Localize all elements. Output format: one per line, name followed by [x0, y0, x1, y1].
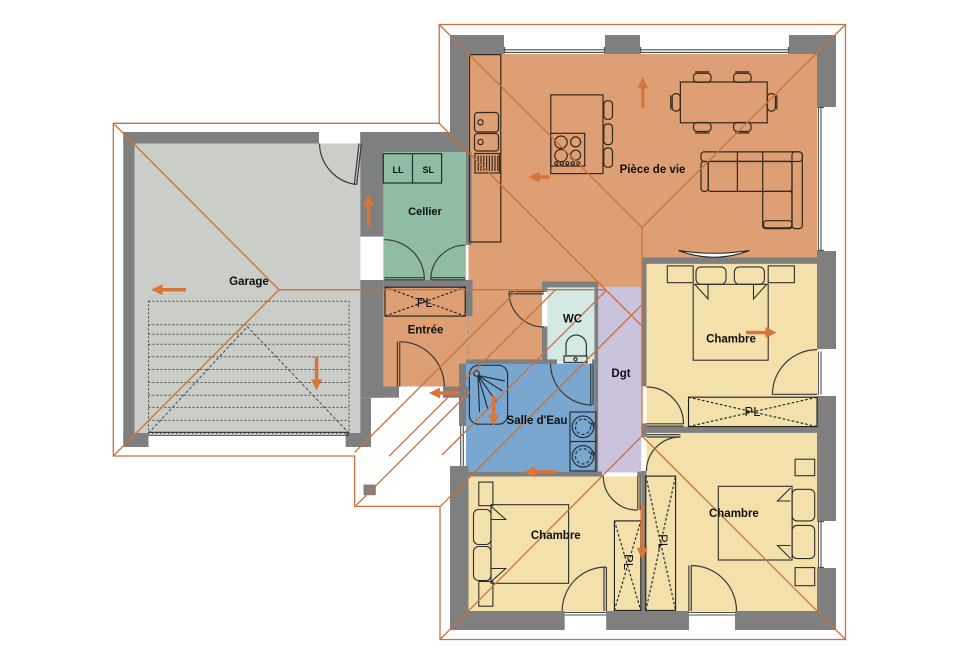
svg-text:Garage: Garage [229, 276, 269, 288]
svg-text:PL: PL [745, 404, 761, 419]
svg-text:WC: WC [563, 314, 582, 326]
svg-text:PL: PL [417, 295, 433, 310]
svg-text:Chambre: Chambre [709, 508, 759, 520]
svg-text:PL: PL [621, 554, 636, 570]
svg-text:SL: SL [422, 165, 434, 175]
svg-text:Salle d'Eau: Salle d'Eau [507, 415, 568, 427]
svg-text:LL: LL [393, 165, 404, 175]
svg-text:Entrée: Entrée [408, 325, 444, 337]
svg-text:Chambre: Chambre [531, 530, 581, 542]
svg-text:Pièce de vie: Pièce de vie [620, 164, 686, 176]
svg-text:Dgt: Dgt [611, 368, 630, 380]
svg-text:PL: PL [655, 534, 670, 550]
svg-text:Chambre: Chambre [706, 334, 756, 346]
svg-text:Cellier: Cellier [408, 206, 442, 218]
